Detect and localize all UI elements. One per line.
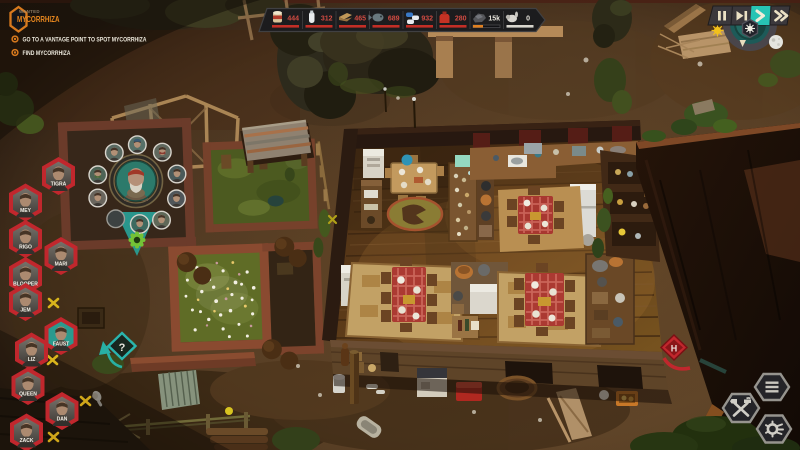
svg-text:689: 689 [388,16,400,23]
svg-text:RIGO: RIGO [19,245,32,251]
svg-text:MEY: MEY [20,208,32,214]
svg-text:932: 932 [421,16,433,23]
svg-text:LIZ: LIZ [28,357,36,363]
svg-text:WANTED: WANTED [19,9,40,14]
svg-text:0: 0 [526,16,530,23]
svg-text:444: 444 [287,16,299,23]
svg-text:TIGRA: TIGRA [51,182,67,188]
svg-text:DAN: DAN [57,417,68,423]
svg-text:?: ? [119,342,126,354]
svg-text:465: 465 [354,16,366,23]
svg-text:JEM: JEM [20,308,30,314]
svg-text:QUEEN: QUEEN [19,392,37,398]
svg-text:H: H [671,344,678,354]
svg-text:MYCORRHIZA: MYCORRHIZA [17,15,60,24]
svg-text:312: 312 [321,16,333,23]
svg-text:280: 280 [455,16,467,23]
svg-text:FIND MYCORRHIZA: FIND MYCORRHIZA [23,50,71,57]
svg-text:MARI: MARI [55,262,68,268]
svg-text:15k: 15k [488,16,500,23]
svg-text:GO TO A VANTAGE POINT TO SPOT: GO TO A VANTAGE POINT TO SPOT MYCORRHIZA [23,36,147,43]
svg-text:ZACK: ZACK [20,438,34,444]
svg-text:FAUST: FAUST [53,342,69,348]
